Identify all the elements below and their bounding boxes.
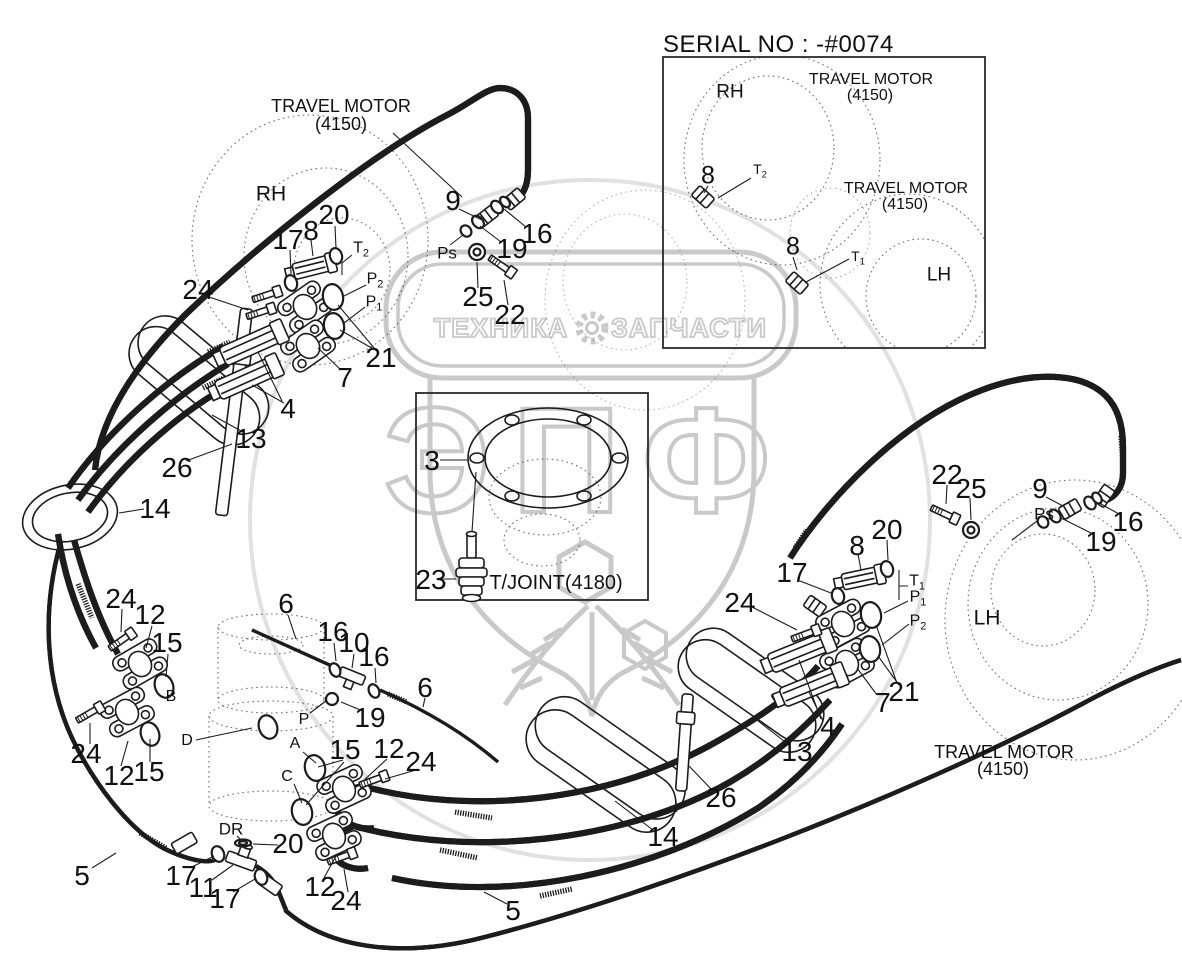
watermark-text-right: ЗАПЧАСТИ: [611, 313, 767, 343]
dotted-travel-motor-right: [945, 480, 1182, 760]
clamp-ring-14-right: [515, 685, 697, 843]
band-strap-26-right: [672, 693, 697, 791]
gear-icon: [579, 315, 605, 341]
parts-diagram-page: ЭПФ ТЕХНИКА ЗАПЧАСТИ: [0, 0, 1182, 976]
watermark-wheat: [505, 542, 679, 705]
diagram-line-art: ЭПФ ТЕХНИКА ЗАПЧАСТИ: [0, 0, 1182, 976]
